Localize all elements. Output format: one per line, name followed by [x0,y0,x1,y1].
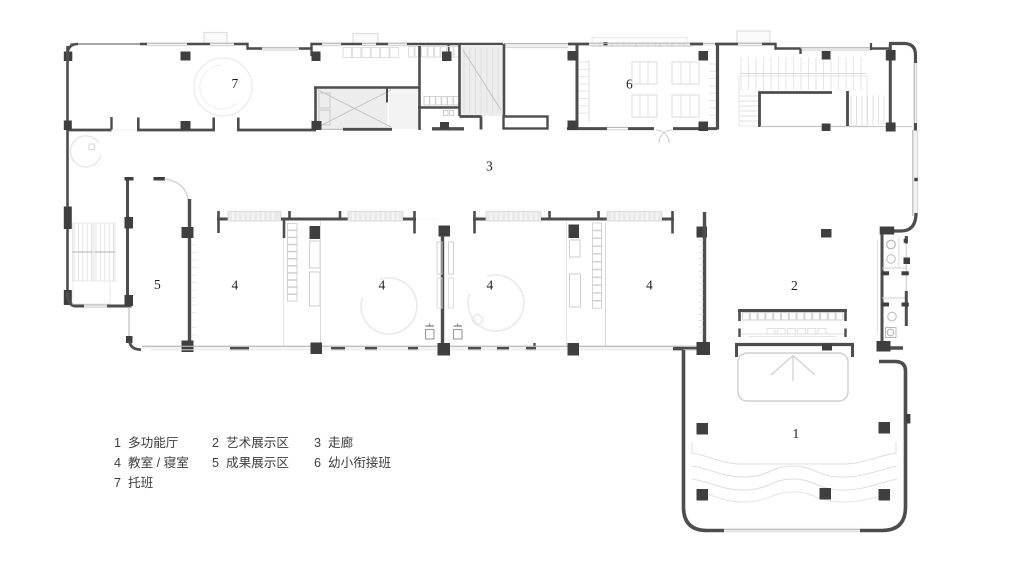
svg-text:4: 4 [379,278,386,293]
svg-text:5: 5 [154,277,161,292]
svg-text:1: 1 [114,436,121,450]
svg-text:艺术展示区: 艺术展示区 [226,436,289,450]
svg-text:幼小衔接班: 幼小衔接班 [328,455,391,470]
svg-text:2: 2 [791,278,798,293]
svg-text:3: 3 [314,436,321,450]
svg-text:7: 7 [232,76,239,91]
svg-text:4: 4 [232,278,239,293]
svg-text:4: 4 [114,456,121,470]
svg-text:多功能厅: 多功能厅 [128,436,178,450]
svg-text:4: 4 [487,278,494,293]
svg-text:4: 4 [646,278,653,293]
svg-text:走廊: 走廊 [328,435,353,450]
svg-text:7: 7 [114,476,121,490]
svg-text:6: 6 [314,456,321,470]
svg-text:成果展示区: 成果展示区 [226,456,289,470]
svg-text:托班: 托班 [128,476,154,490]
svg-text:教室 / 寝室: 教室 / 寝室 [128,455,189,470]
svg-text:1: 1 [793,426,800,441]
svg-text:5: 5 [212,456,219,470]
svg-text:3: 3 [486,159,493,174]
svg-text:2: 2 [212,436,219,450]
